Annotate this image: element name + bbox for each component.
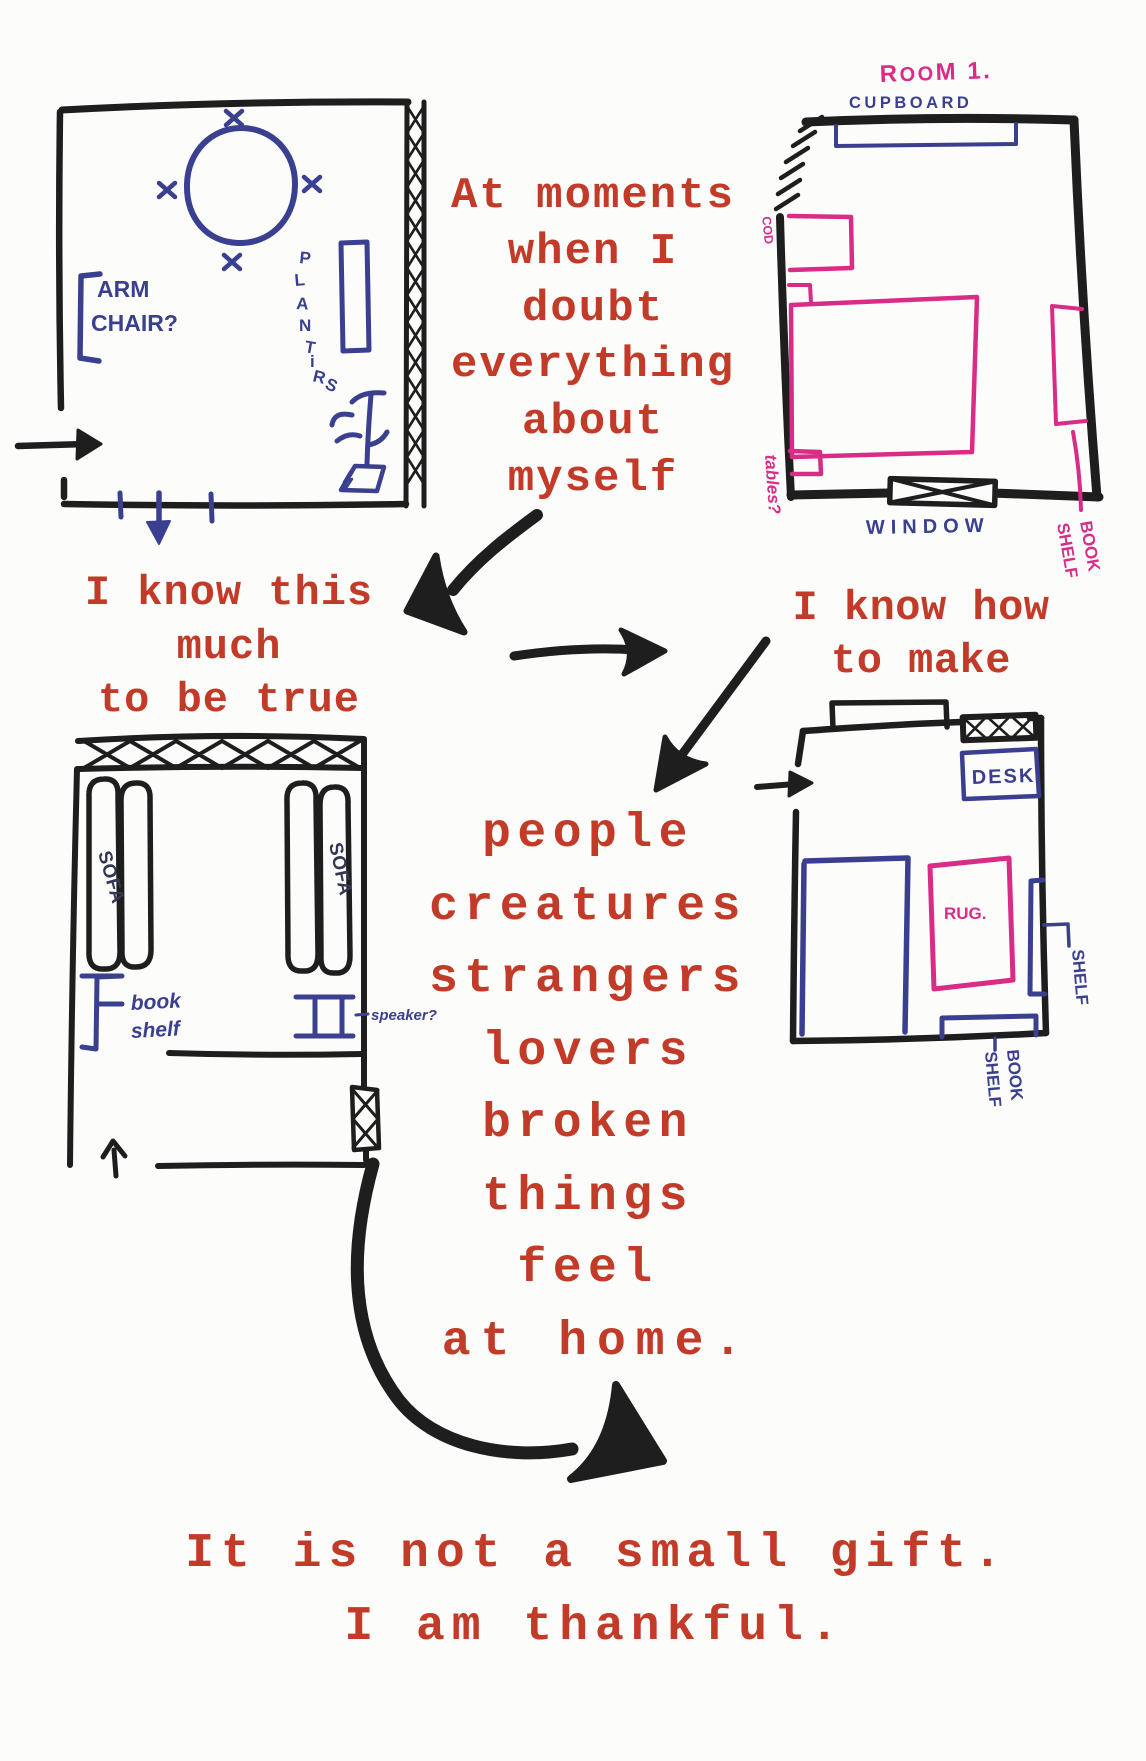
svg-text:shelf: shelf bbox=[130, 1017, 182, 1043]
svg-text:book: book bbox=[130, 989, 183, 1015]
svg-text:much: much bbox=[177, 623, 282, 671]
svg-text:lovers: lovers bbox=[482, 1025, 694, 1079]
svg-text:COD: COD bbox=[759, 216, 776, 245]
svg-text:things: things bbox=[482, 1170, 694, 1224]
svg-text:i: i bbox=[310, 352, 315, 371]
svg-text:tables?: tables? bbox=[761, 454, 784, 515]
svg-text:speaker?: speaker? bbox=[371, 1007, 437, 1024]
svg-text:people: people bbox=[482, 807, 694, 861]
svg-text:at home.: at home. bbox=[442, 1315, 752, 1369]
svg-text:I know how: I know how bbox=[792, 584, 1049, 632]
svg-text:doubt: doubt bbox=[522, 284, 664, 334]
svg-text:L: L bbox=[294, 270, 306, 290]
svg-text:about: about bbox=[522, 397, 664, 447]
svg-text:I know this: I know this bbox=[85, 569, 373, 617]
svg-text:myself: myself bbox=[508, 454, 678, 504]
svg-text:creatures: creatures bbox=[429, 880, 747, 934]
svg-text:WINDOW: WINDOW bbox=[866, 515, 990, 539]
svg-text:BOOK: BOOK bbox=[1003, 1049, 1026, 1102]
svg-text:ROOM 1.: ROOM 1. bbox=[879, 57, 993, 88]
svg-text:strangers: strangers bbox=[429, 952, 747, 1006]
svg-text:ARM: ARM bbox=[97, 276, 149, 302]
svg-text:It is not a small gift.: It is not a small gift. bbox=[185, 1527, 1009, 1581]
svg-text:P: P bbox=[299, 248, 312, 268]
svg-text:At moments: At moments bbox=[451, 171, 735, 221]
svg-text:SHELF: SHELF bbox=[1068, 949, 1092, 1006]
svg-text:to make: to make bbox=[831, 637, 1011, 685]
svg-text:CHAIR?: CHAIR? bbox=[91, 310, 178, 336]
svg-text:CUPBOARD: CUPBOARD bbox=[849, 94, 972, 112]
svg-text:I am thankful.: I am thankful. bbox=[344, 1600, 845, 1654]
svg-text:when I: when I bbox=[508, 227, 678, 277]
svg-text:N: N bbox=[299, 316, 311, 335]
svg-text:SHELF: SHELF bbox=[981, 1051, 1005, 1108]
svg-text:broken: broken bbox=[482, 1097, 694, 1151]
svg-text:feel: feel bbox=[517, 1242, 658, 1296]
svg-text:to be true: to be true bbox=[98, 676, 360, 724]
svg-text:SHELF: SHELF bbox=[1053, 521, 1081, 579]
svg-text:everything: everything bbox=[451, 340, 735, 390]
svg-text:RUG.: RUG. bbox=[944, 904, 987, 923]
svg-text:DESK: DESK bbox=[971, 765, 1035, 789]
svg-text:A: A bbox=[296, 294, 309, 314]
